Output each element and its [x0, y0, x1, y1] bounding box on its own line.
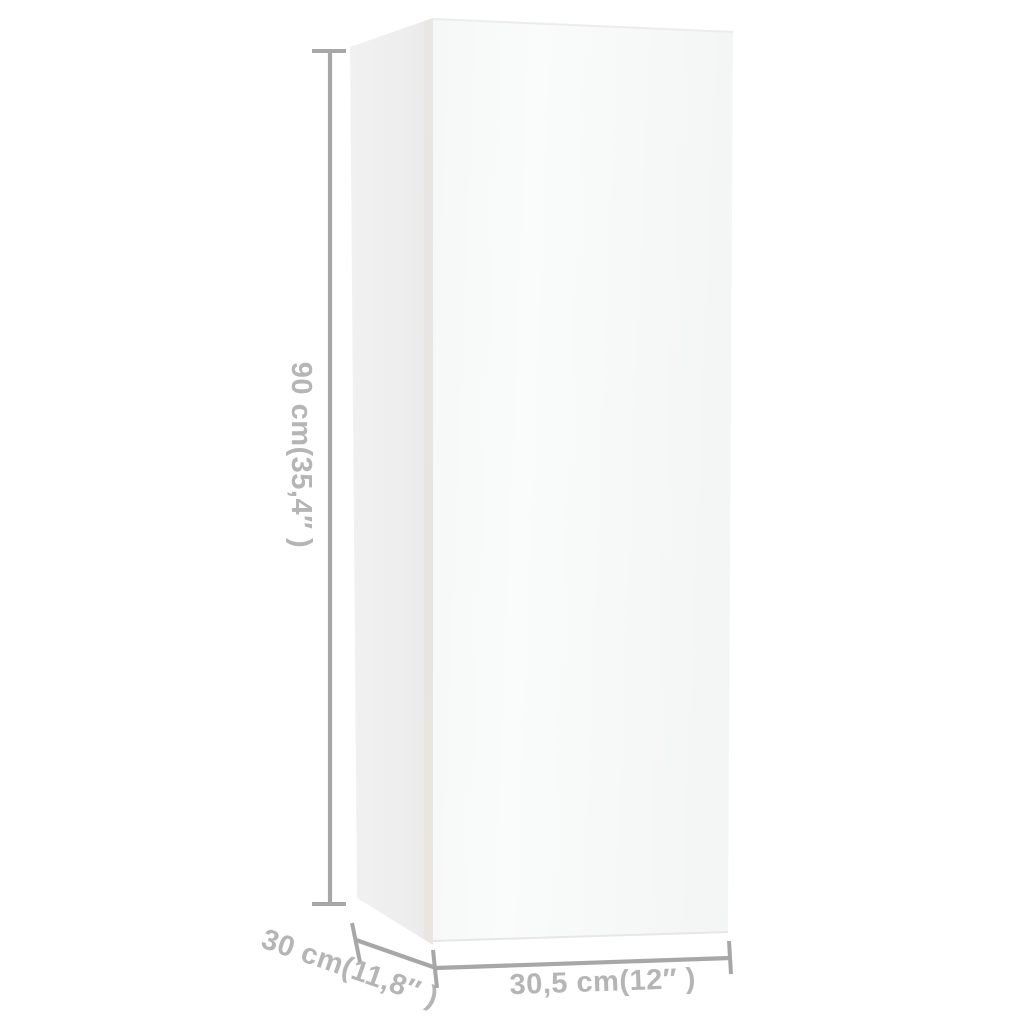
width-dimension: 30,5 cm(12″ ) [433, 941, 731, 1001]
cabinet-front-face [433, 18, 733, 942]
width-dimension-label: 30,5 cm(12″ ) [509, 963, 696, 1001]
width-dimension-end-tick [729, 941, 731, 974]
height-dimension-label: 90 cm(35,4″ ) [285, 362, 317, 548]
depth-dimension: 30 cm(11,8″ ) [257, 923, 442, 1014]
product-dimension-diagram: 90 cm(35,4″ ) 30 cm(11,8″ ) 30,5 cm(12″ … [0, 0, 1024, 1024]
height-dimension: 90 cm(35,4″ ) [285, 51, 346, 904]
dimension-diagram-canvas: 90 cm(35,4″ ) 30 cm(11,8″ ) 30,5 cm(12″ … [0, 0, 1024, 1024]
depth-dimension-label: 30 cm(11,8″ ) [257, 923, 442, 1013]
cabinet [350, 18, 733, 945]
cabinet-side-face [350, 18, 433, 945]
cabinet-edge-strip [424, 18, 433, 945]
